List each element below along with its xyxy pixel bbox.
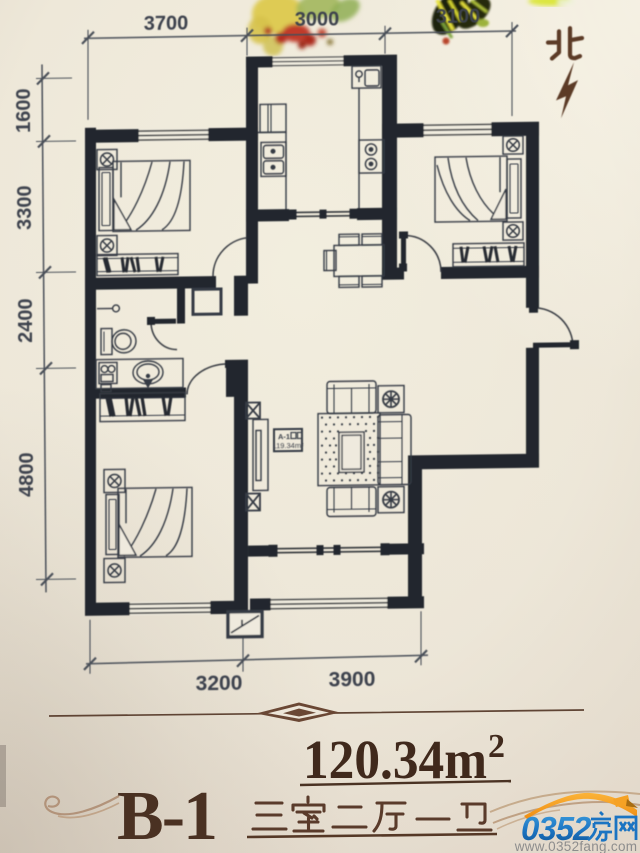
svg-text:2: 2: [488, 728, 505, 765]
svg-text:1600: 1600: [13, 88, 35, 133]
svg-text:3300: 3300: [14, 185, 36, 230]
svg-text:3100: 3100: [436, 5, 480, 28]
svg-text:B-1: B-1: [117, 778, 216, 853]
svg-text:3900: 3900: [329, 668, 376, 692]
svg-text:4800: 4800: [16, 452, 38, 497]
svg-text:3200: 3200: [196, 672, 243, 696]
svg-text:A-1: A-1: [278, 432, 290, 441]
svg-text:www.0352fang.com: www.0352fang.com: [514, 839, 638, 853]
svg-text:3000: 3000: [295, 8, 339, 31]
svg-text:3700: 3700: [144, 12, 188, 35]
svg-text:2400: 2400: [15, 298, 37, 343]
svg-text:119.34m²: 119.34m²: [272, 441, 304, 450]
